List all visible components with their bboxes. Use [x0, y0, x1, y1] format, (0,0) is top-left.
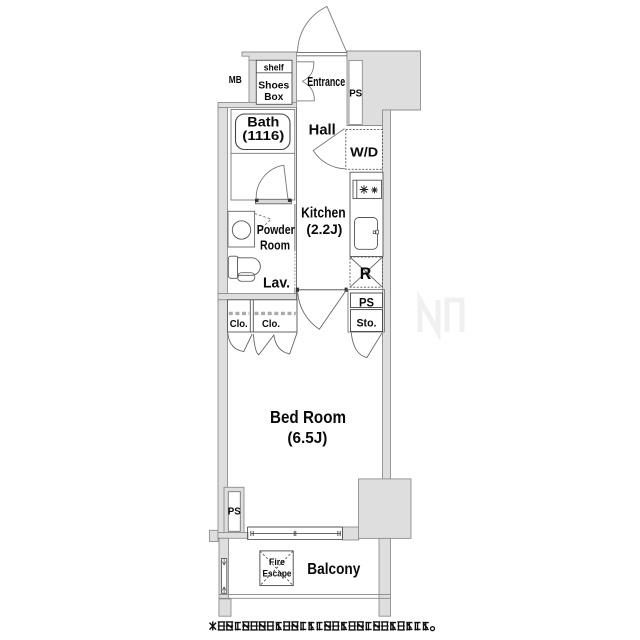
svg-text:Hall: Hall — [309, 122, 336, 138]
svg-text:Sto.: Sto. — [357, 317, 377, 329]
svg-text:Clo.: Clo. — [262, 319, 280, 330]
svg-text:shelf: shelf — [264, 62, 284, 72]
svg-text:Bed Room: Bed Room — [270, 407, 346, 427]
svg-text:Bath: Bath — [247, 114, 279, 129]
svg-text:Powder: Powder — [257, 222, 295, 237]
svg-text:Fire: Fire — [269, 557, 285, 567]
svg-text:R: R — [360, 264, 372, 283]
svg-text:(1116): (1116) — [242, 129, 284, 143]
svg-text:(2.2J): (2.2J) — [306, 221, 342, 237]
svg-text:PS: PS — [359, 298, 374, 310]
svg-text:PS: PS — [349, 88, 362, 100]
svg-text:Clo.: Clo. — [230, 319, 248, 330]
svg-text:Box: Box — [264, 91, 283, 103]
svg-text:Kitchen: Kitchen — [301, 205, 346, 221]
svg-text:Room: Room — [260, 237, 290, 252]
svg-text:(6.5J): (6.5J) — [287, 430, 327, 447]
svg-text:Entrance: Entrance — [307, 74, 345, 89]
svg-text:MB: MB — [229, 75, 242, 86]
svg-text:Shoes: Shoes — [258, 80, 289, 92]
svg-text:Escape: Escape — [263, 569, 292, 579]
svg-text:PS: PS — [228, 507, 241, 518]
svg-text:Lav.: Lav. — [263, 276, 290, 292]
svg-text:Balcony: Balcony — [307, 561, 360, 578]
svg-text:W/D: W/D — [350, 145, 378, 160]
